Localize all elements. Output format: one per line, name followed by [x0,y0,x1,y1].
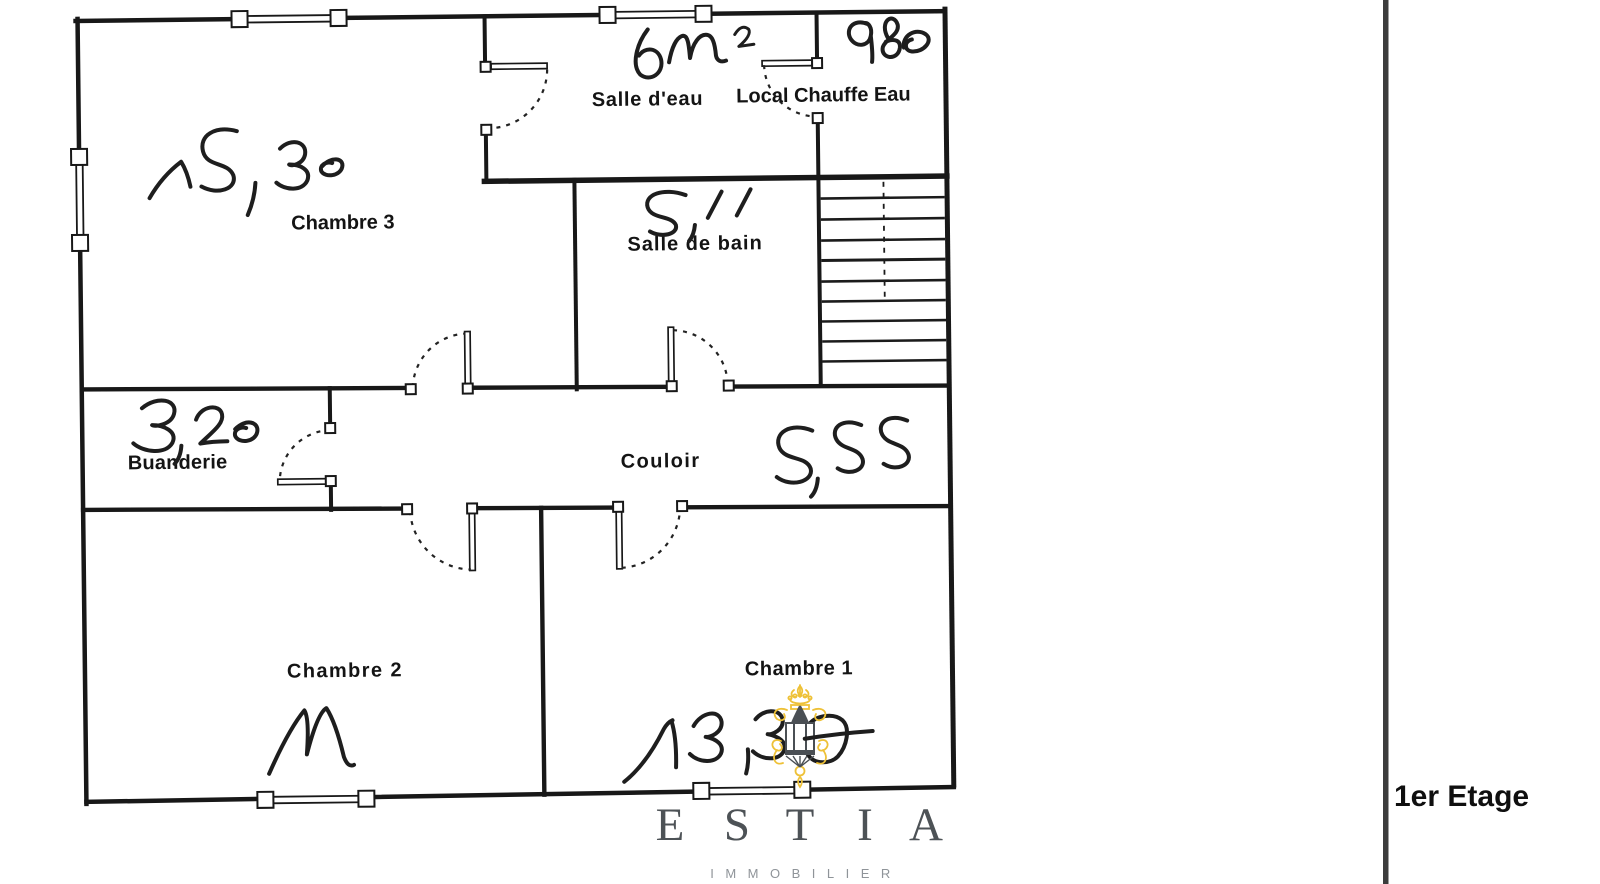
svg-text:IMMOBILIER: IMMOBILIER [710,866,902,881]
svg-text:E: E [656,799,685,851]
svg-text:Salle d'eau: Salle d'eau [592,88,704,111]
svg-text:Salle de bain: Salle de bain [627,232,763,256]
svg-text:S: S [724,799,750,851]
svg-text:A: A [909,799,943,851]
svg-text:Chambre 1: Chambre 1 [745,657,854,680]
svg-text:Local Chauffe Eau: Local Chauffe Eau [736,83,911,107]
svg-text:1er Etage: 1er Etage [1394,780,1529,813]
svg-text:T: T [786,799,815,851]
svg-text:Chambre 2: Chambre 2 [287,659,403,682]
svg-text:Couloir: Couloir [621,450,701,473]
svg-text:Chambre 3: Chambre 3 [291,211,395,234]
svg-text:I: I [857,799,873,851]
